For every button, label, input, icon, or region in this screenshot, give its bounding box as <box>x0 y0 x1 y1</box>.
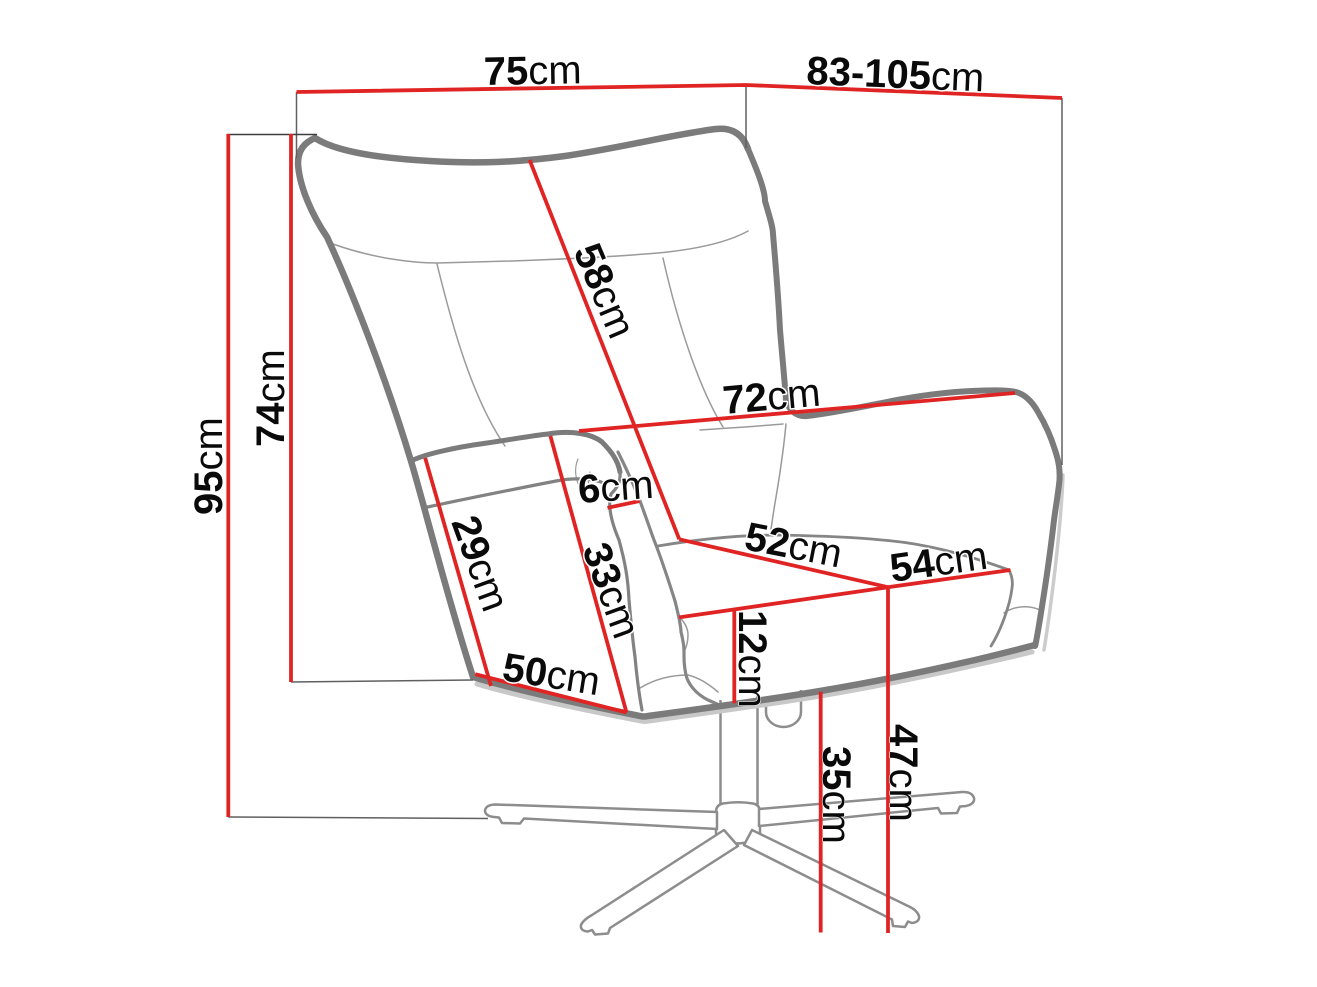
svg-text:75cm: 75cm <box>483 48 582 94</box>
svg-text:95cm: 95cm <box>187 417 231 515</box>
svg-text:47cm: 47cm <box>881 724 925 822</box>
svg-text:72cm: 72cm <box>721 371 822 423</box>
svg-text:12cm: 12cm <box>730 610 774 708</box>
svg-text:74cm: 74cm <box>249 349 293 447</box>
svg-text:83-105cm: 83-105cm <box>806 49 986 100</box>
svg-text:6cm: 6cm <box>577 463 655 512</box>
svg-text:35cm: 35cm <box>814 746 858 844</box>
